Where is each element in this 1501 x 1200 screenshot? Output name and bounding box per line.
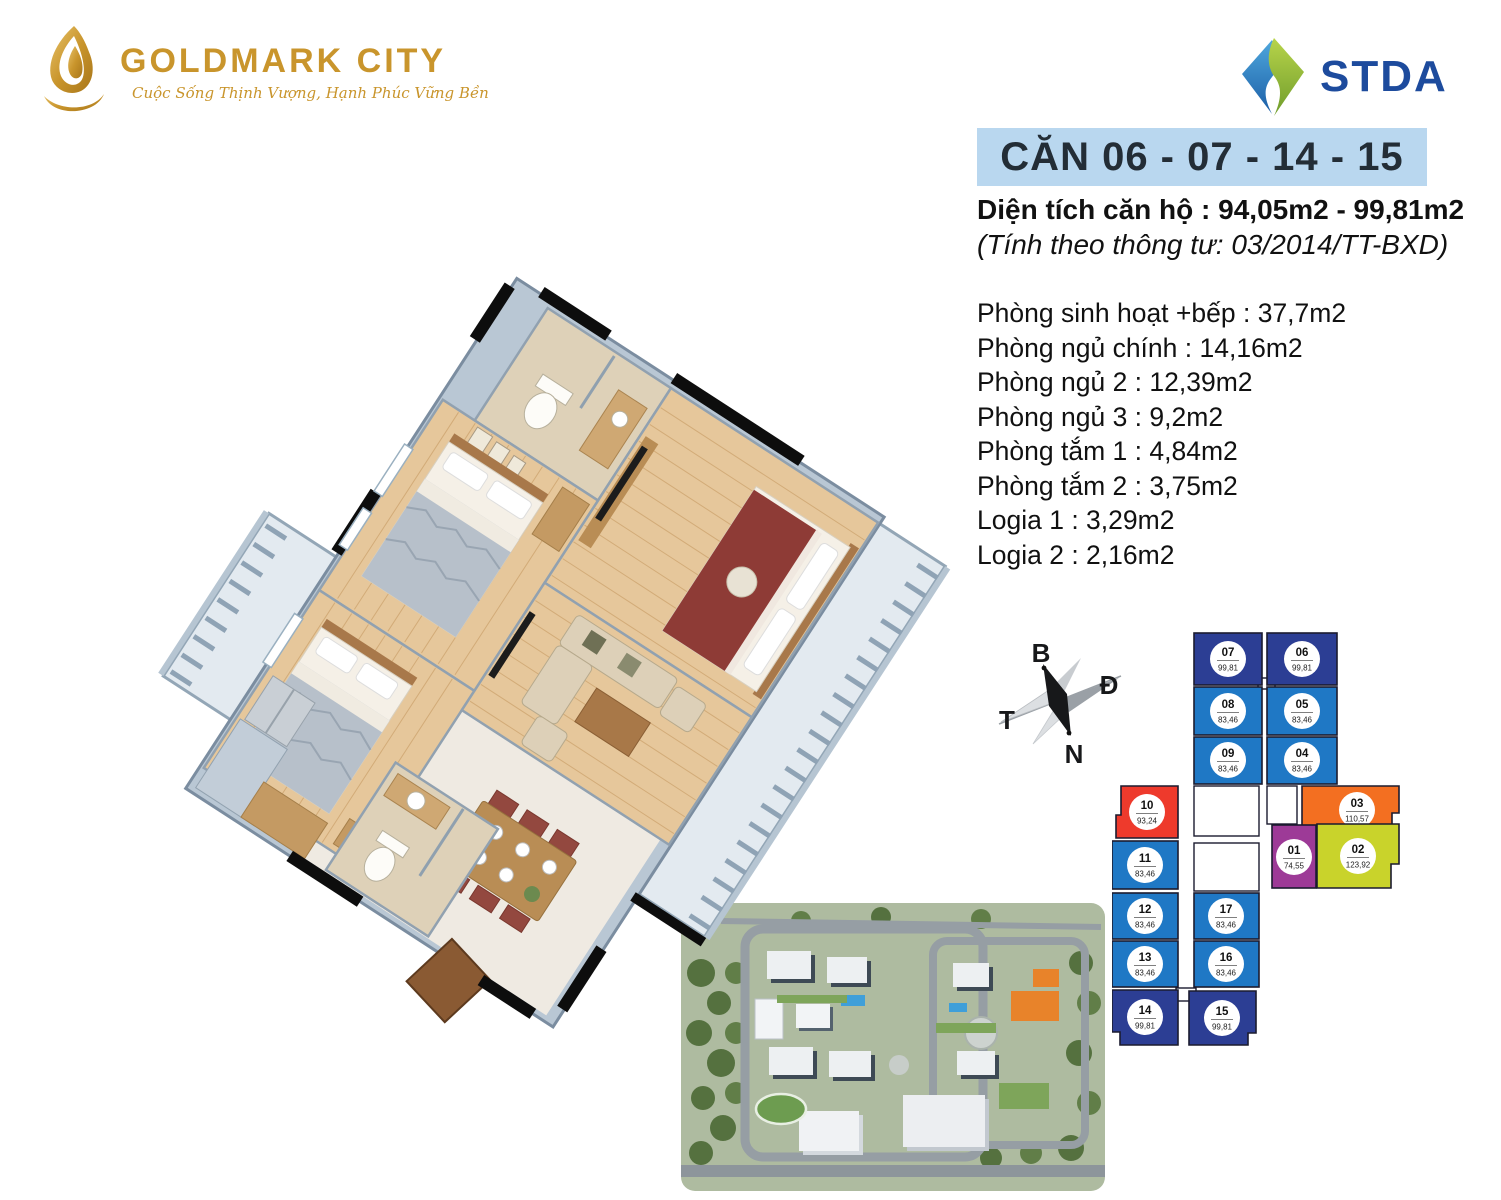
bedroom-2 bbox=[545, 388, 879, 717]
room-area-row: Logia 1 : 3,29m2 bbox=[977, 503, 1346, 538]
room-area-row: Phòng tắm 2 : 3,75m2 bbox=[977, 469, 1346, 504]
area-note-line: (Tính theo thông tư: 03/2014/TT-BXD) bbox=[977, 229, 1448, 261]
keyplan-unit-area: 83,46 bbox=[1135, 921, 1156, 930]
keyplan-unit-area: 99,81 bbox=[1135, 1022, 1156, 1031]
keyplan-unit-number: 11 bbox=[1139, 853, 1152, 865]
keyplan-unit-number: 08 bbox=[1222, 699, 1235, 711]
room-area-row: Phòng ngủ 2 : 12,39m2 bbox=[977, 365, 1346, 400]
keyplan-unit-06: 0699,81 bbox=[1267, 633, 1337, 685]
keyplan-unit-area: 99,81 bbox=[1218, 664, 1239, 673]
keyplan-service-block bbox=[1267, 786, 1297, 824]
keyplan-unit-number: 17 bbox=[1220, 904, 1233, 916]
room-label: Phòng ngủ 3 bbox=[977, 402, 1127, 432]
bathroom-1 bbox=[475, 308, 671, 500]
keyplan-unit-12: 1283,46 bbox=[1112, 893, 1178, 939]
room-label: Phòng ngủ chính bbox=[977, 333, 1177, 363]
keyplan-unit-number: 16 bbox=[1220, 952, 1233, 964]
keyplan-unit-15: 1599,81 bbox=[1189, 991, 1256, 1045]
keyplan-unit-number: 14 bbox=[1139, 1005, 1152, 1017]
keyplan-unit-number: 04 bbox=[1296, 748, 1309, 760]
keyplan-unit-08: 0883,46 bbox=[1194, 687, 1262, 735]
brand-tagline: Cuộc Sống Thịnh Vượng, Hạnh Phúc Vững Bề… bbox=[132, 84, 489, 102]
apartment-area-value: 94,05m2 - 99,81m2 bbox=[1218, 194, 1464, 225]
keyplan-unit-number: 02 bbox=[1352, 844, 1365, 856]
compass-west-label: T bbox=[999, 705, 1015, 735]
keyplan-unit-17: 1783,46 bbox=[1194, 893, 1259, 939]
keyplan-unit-09: 0983,46 bbox=[1194, 737, 1262, 784]
room-value: 14,16m2 bbox=[1200, 333, 1303, 363]
room-value: 12,39m2 bbox=[1149, 367, 1252, 397]
apartment-area-line: Diện tích căn hộ : 94,05m2 - 99,81m2 bbox=[977, 194, 1464, 226]
keyplan-unit-05: 0583,46 bbox=[1267, 687, 1337, 735]
room-value: 3,75m2 bbox=[1149, 471, 1237, 501]
compass-south-label: N bbox=[1065, 739, 1084, 769]
brand-name: GOLDMARK CITY bbox=[120, 42, 446, 81]
keyplan-unit-area: 83,46 bbox=[1218, 765, 1239, 774]
stda-diamond-icon bbox=[1230, 34, 1314, 122]
room-area-list: Phòng sinh hoạt +bếp : 37,7m2Phòng ngủ c… bbox=[977, 296, 1346, 572]
keyplan-unit-area: 99,81 bbox=[1212, 1023, 1233, 1032]
room-value: 37,7m2 bbox=[1258, 298, 1346, 328]
keyplan-unit-area: 93,24 bbox=[1137, 817, 1158, 826]
keyplan-unit-number: 12 bbox=[1139, 904, 1152, 916]
kitchen-area bbox=[196, 674, 379, 859]
keyplan-unit-16: 1683,46 bbox=[1194, 941, 1259, 987]
keyplan-unit-area: 74,55 bbox=[1284, 862, 1305, 871]
goldmark-logo bbox=[38, 22, 114, 123]
keyplan-unit-number: 05 bbox=[1296, 699, 1309, 711]
keyplan-service-block bbox=[1194, 843, 1259, 891]
keyplan-unit-number: 09 bbox=[1222, 748, 1235, 760]
room-area-row: Phòng ngủ 3 : 9,2m2 bbox=[977, 400, 1346, 435]
keyplan-unit-area: 99,81 bbox=[1292, 664, 1313, 673]
compass-north-label: B bbox=[1032, 638, 1051, 668]
keyplan-service-block bbox=[1194, 786, 1259, 836]
room-value: 9,2m2 bbox=[1149, 402, 1223, 432]
stda-logo bbox=[1230, 34, 1314, 127]
page-root: GOLDMARK CITY Cuộc Sống Thịnh Vượng, Hạn… bbox=[0, 0, 1501, 1200]
keyplan-unit-10: 1093,24 bbox=[1116, 786, 1178, 838]
room-label: Logia 2 bbox=[977, 540, 1064, 570]
room-label: Phòng ngủ 2 bbox=[977, 367, 1127, 397]
keyplan-unit-14: 1499,81 bbox=[1112, 990, 1178, 1045]
room-value: 2,16m2 bbox=[1086, 540, 1174, 570]
room-value: 4,84m2 bbox=[1149, 436, 1237, 466]
living-room bbox=[462, 583, 752, 845]
keyplan-unit-number: 06 bbox=[1296, 647, 1309, 659]
balcony-right bbox=[636, 522, 951, 941]
room-label: Logia 1 bbox=[977, 505, 1064, 535]
keyplan-unit-area: 83,46 bbox=[1292, 765, 1313, 774]
keyplan-unit-area: 83,46 bbox=[1216, 921, 1237, 930]
window-strips bbox=[263, 444, 413, 668]
keyplan-unit-02: 02123,92 bbox=[1317, 824, 1399, 888]
keyplan-unit-number: 01 bbox=[1288, 845, 1301, 857]
bathroom-2 bbox=[326, 763, 498, 937]
keyplan-unit-area: 83,46 bbox=[1135, 870, 1156, 879]
balcony-left bbox=[158, 510, 339, 722]
keyplan-unit-area: 83,46 bbox=[1135, 969, 1156, 978]
room-label: Phòng tắm 1 bbox=[977, 436, 1127, 466]
bedroom-3 bbox=[204, 590, 475, 869]
room-area-row: Phòng sinh hoạt +bếp : 37,7m2 bbox=[977, 296, 1346, 331]
room-area-row: Logia 2 : 2,16m2 bbox=[977, 538, 1346, 573]
keyplan-unit-area: 83,46 bbox=[1292, 716, 1313, 725]
apartment-area-label: Diện tích căn hộ : bbox=[977, 194, 1210, 225]
unit-title-bar: CĂN 06 - 07 - 14 - 15 bbox=[977, 128, 1427, 186]
keyplan-unit-number: 10 bbox=[1141, 800, 1154, 812]
room-value: 3,29m2 bbox=[1086, 505, 1174, 535]
keyplan-unit-13: 1383,46 bbox=[1112, 941, 1178, 987]
keyplan-unit-11: 1183,46 bbox=[1112, 841, 1178, 889]
unit-title: CĂN 06 - 07 - 14 - 15 bbox=[1000, 135, 1403, 180]
lotus-flame-icon bbox=[38, 22, 114, 118]
site-plan-aerial bbox=[681, 903, 1105, 1191]
keyplan-unit-number: 03 bbox=[1351, 798, 1364, 810]
keyplan-unit-number: 15 bbox=[1216, 1006, 1229, 1018]
floor-key-plan: 0799,810699,810883,460583,460983,460483,… bbox=[1112, 628, 1404, 1050]
keyplan-unit-area: 123,92 bbox=[1346, 861, 1371, 870]
keyplan-unit-number: 13 bbox=[1139, 952, 1152, 964]
room-area-row: Phòng tắm 1 : 4,84m2 bbox=[977, 434, 1346, 469]
entry-door bbox=[407, 939, 491, 1022]
keyplan-unit-area: 110,57 bbox=[1345, 815, 1369, 824]
keyplan-unit-07: 0799,81 bbox=[1194, 633, 1262, 685]
keyplan-unit-04: 0483,46 bbox=[1267, 737, 1337, 784]
master-bedroom bbox=[319, 400, 598, 691]
room-area-row: Phòng ngủ chính : 14,16m2 bbox=[977, 331, 1346, 366]
keyplan-unit-01: 0174,55 bbox=[1272, 825, 1316, 888]
dining-area bbox=[434, 787, 586, 937]
room-label: Phòng sinh hoạt +bếp bbox=[977, 298, 1236, 328]
stda-wordmark: STDA bbox=[1320, 52, 1448, 102]
keyplan-unit-number: 07 bbox=[1222, 647, 1235, 659]
keyplan-unit-area: 83,46 bbox=[1218, 716, 1239, 725]
keyplan-unit-area: 83,46 bbox=[1216, 969, 1237, 978]
room-label: Phòng tắm 2 bbox=[977, 471, 1127, 501]
